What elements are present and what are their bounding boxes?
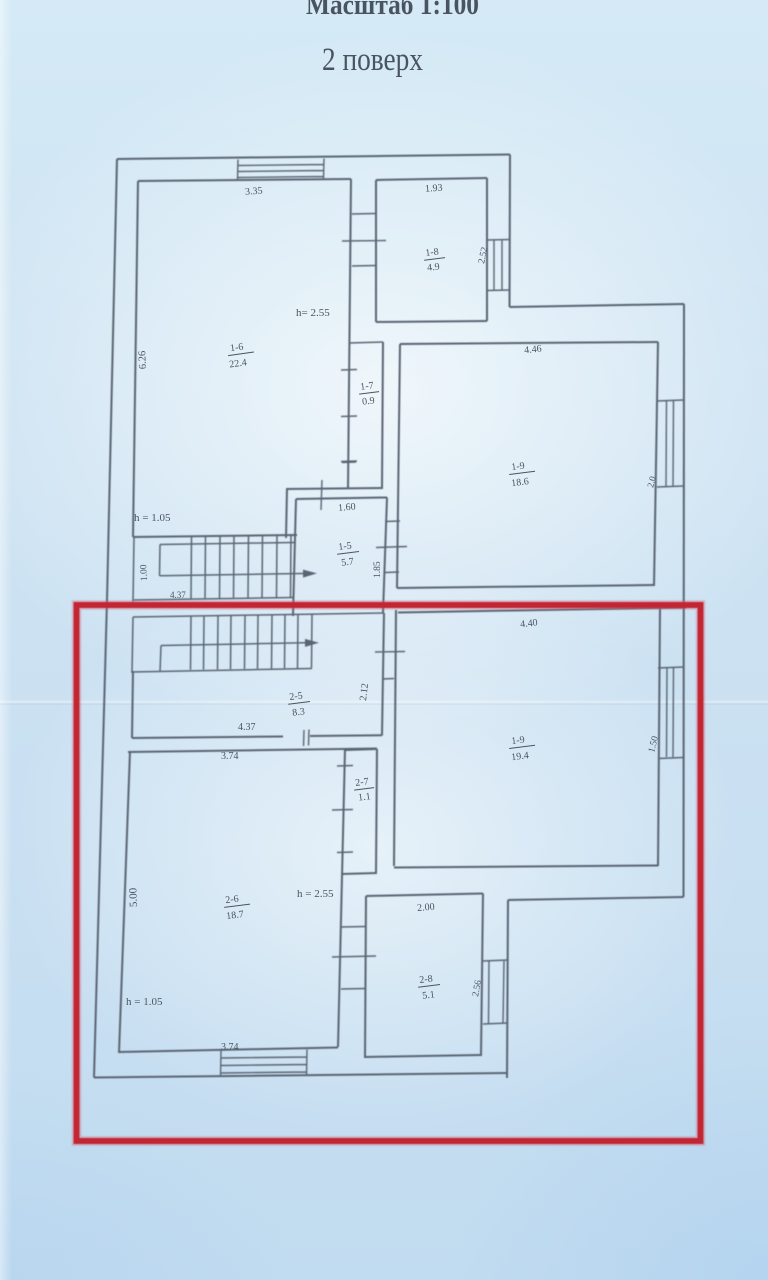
svg-text:1-7: 1-7 [360,380,375,393]
svg-text:1.60: 1.60 [338,501,356,513]
svg-text:3.35: 3.35 [245,186,263,198]
svg-text:4.9: 4.9 [427,261,441,273]
svg-text:2 поверх: 2 поверх [322,42,423,78]
svg-text:1-5: 1-5 [338,540,353,553]
svg-text:1.93: 1.93 [425,183,443,195]
svg-text:19.4: 19.4 [511,750,530,763]
svg-text:2.00: 2.00 [417,902,435,914]
svg-text:5.7: 5.7 [341,556,355,568]
svg-text:4.40: 4.40 [520,617,539,630]
svg-text:2.52: 2.52 [477,246,490,265]
svg-text:2-6: 2-6 [225,894,240,907]
svg-text:2.12: 2.12 [358,683,371,702]
svg-text:3.74: 3.74 [221,751,239,762]
svg-text:2-5: 2-5 [289,690,304,703]
svg-text:18.6: 18.6 [511,476,530,489]
svg-text:22.4: 22.4 [229,357,248,370]
svg-text:2-8: 2-8 [419,973,434,986]
svg-text:1-8: 1-8 [425,246,440,259]
svg-text:8.3: 8.3 [292,706,306,718]
svg-text:4.46: 4.46 [524,343,543,356]
svg-text:Масштаб 1:100: Масштаб 1:100 [306,0,479,21]
svg-text:1.00: 1.00 [139,564,150,581]
svg-text:2-7: 2-7 [355,776,370,789]
svg-text:4.37: 4.37 [170,590,186,600]
svg-text:6.26: 6.26 [137,350,149,369]
svg-text:3.74: 3.74 [221,1042,239,1053]
svg-text:0.9: 0.9 [362,395,376,407]
svg-text:18.7: 18.7 [226,909,245,922]
svg-text:1-9: 1-9 [511,461,526,474]
svg-text:h = 1.05: h = 1.05 [126,996,163,1008]
svg-text:5.00: 5.00 [127,887,140,907]
svg-text:h = 1.05: h = 1.05 [134,512,171,524]
svg-text:1-6: 1-6 [229,342,244,355]
svg-text:1.85: 1.85 [373,561,383,578]
svg-text:5.1: 5.1 [422,989,436,1001]
svg-text:4.37: 4.37 [238,722,256,733]
svg-text:1-9: 1-9 [511,735,526,748]
svg-text:h= 2.55: h= 2.55 [296,307,330,319]
svg-text:h = 2.55: h = 2.55 [297,888,334,900]
svg-text:1.1: 1.1 [358,791,372,803]
